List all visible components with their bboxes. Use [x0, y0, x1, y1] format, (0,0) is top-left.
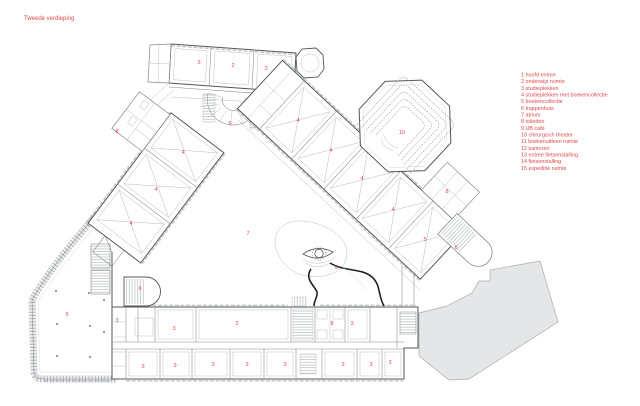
- legend-item: 6 trappenhuis: [521, 106, 554, 112]
- eye-counter: [303, 248, 333, 258]
- legend-item: 12 kantoren: [521, 146, 549, 152]
- corner-tower: [296, 48, 324, 78]
- roof-hatched-area: [419, 261, 558, 380]
- room-label: 8: [445, 189, 448, 195]
- room-label: 3: [115, 318, 118, 324]
- room-label: 5: [423, 237, 426, 243]
- legend-item: 4 studieplekken met boekencollectie: [521, 93, 608, 99]
- room-label: 3: [197, 60, 200, 66]
- legend-item: 3 studieplekken: [521, 86, 558, 92]
- legend-item: 9 UB café: [521, 126, 545, 132]
- room-label: 8: [115, 129, 118, 135]
- room-label: 3: [369, 362, 372, 368]
- room-label: 4: [296, 118, 299, 124]
- room-label: 10: [399, 130, 405, 136]
- room-label: 6: [454, 245, 457, 251]
- legend-item: 1 hoofd entree: [521, 73, 556, 79]
- room-label: 3: [350, 321, 353, 327]
- room-label: 3: [173, 363, 176, 369]
- room-label: 4: [391, 207, 394, 213]
- room-label: 7: [246, 231, 249, 237]
- legend: 1 hoofd entree2 onderwijs ruimte3 studie…: [521, 73, 608, 172]
- room-label: 6: [228, 121, 231, 127]
- legend-item: 15 expeditie ruimte: [521, 166, 567, 172]
- room-label: 5: [65, 312, 68, 318]
- room-label: 3: [141, 364, 144, 370]
- room-label: 3: [341, 362, 344, 368]
- room-label: 8: [330, 321, 333, 327]
- room-label: 4: [154, 187, 157, 193]
- room-label: 3: [283, 362, 286, 368]
- legend-item: 13 entree fietsenstalling: [521, 153, 578, 159]
- room-label: 2: [235, 321, 238, 327]
- ub-cafe: [275, 221, 384, 306]
- room-label: 9: [334, 265, 337, 271]
- room-label: 4: [129, 221, 132, 227]
- triangle-book-collection: [32, 215, 117, 379]
- room-label: 3: [211, 362, 214, 368]
- legend-item: 8 toiletten: [521, 119, 544, 125]
- floor-plan-page: Tweede verdieping 1 hoofd entree2 onderw…: [0, 0, 640, 406]
- page-title: Tweede verdieping: [24, 16, 74, 22]
- room-label: 4: [360, 176, 363, 182]
- legend-item: 11 boekenuitleen ruimte: [521, 139, 578, 145]
- room-label: 2: [231, 63, 234, 69]
- legend-item: 14 fietsenstalling: [521, 159, 561, 165]
- legend-item: 10 chirurgisch theater: [521, 133, 573, 139]
- floor-plan-drawing: Tweede verdieping 1 hoofd entree2 onderw…: [0, 0, 640, 406]
- room-label: 3: [388, 360, 391, 366]
- room-label: 3: [245, 362, 248, 368]
- room-label: 3: [172, 326, 175, 332]
- legend-item: 7 atrium: [521, 113, 541, 119]
- room-label: 4: [329, 148, 332, 154]
- right-wing: [232, 33, 519, 311]
- legend-item: 2 onderwijs ruimte: [521, 79, 565, 85]
- room-label: 3: [264, 66, 267, 72]
- legend-item: 5 boekencollectie: [521, 99, 563, 105]
- room-label: 4: [181, 150, 184, 156]
- room-label: 6: [138, 286, 141, 292]
